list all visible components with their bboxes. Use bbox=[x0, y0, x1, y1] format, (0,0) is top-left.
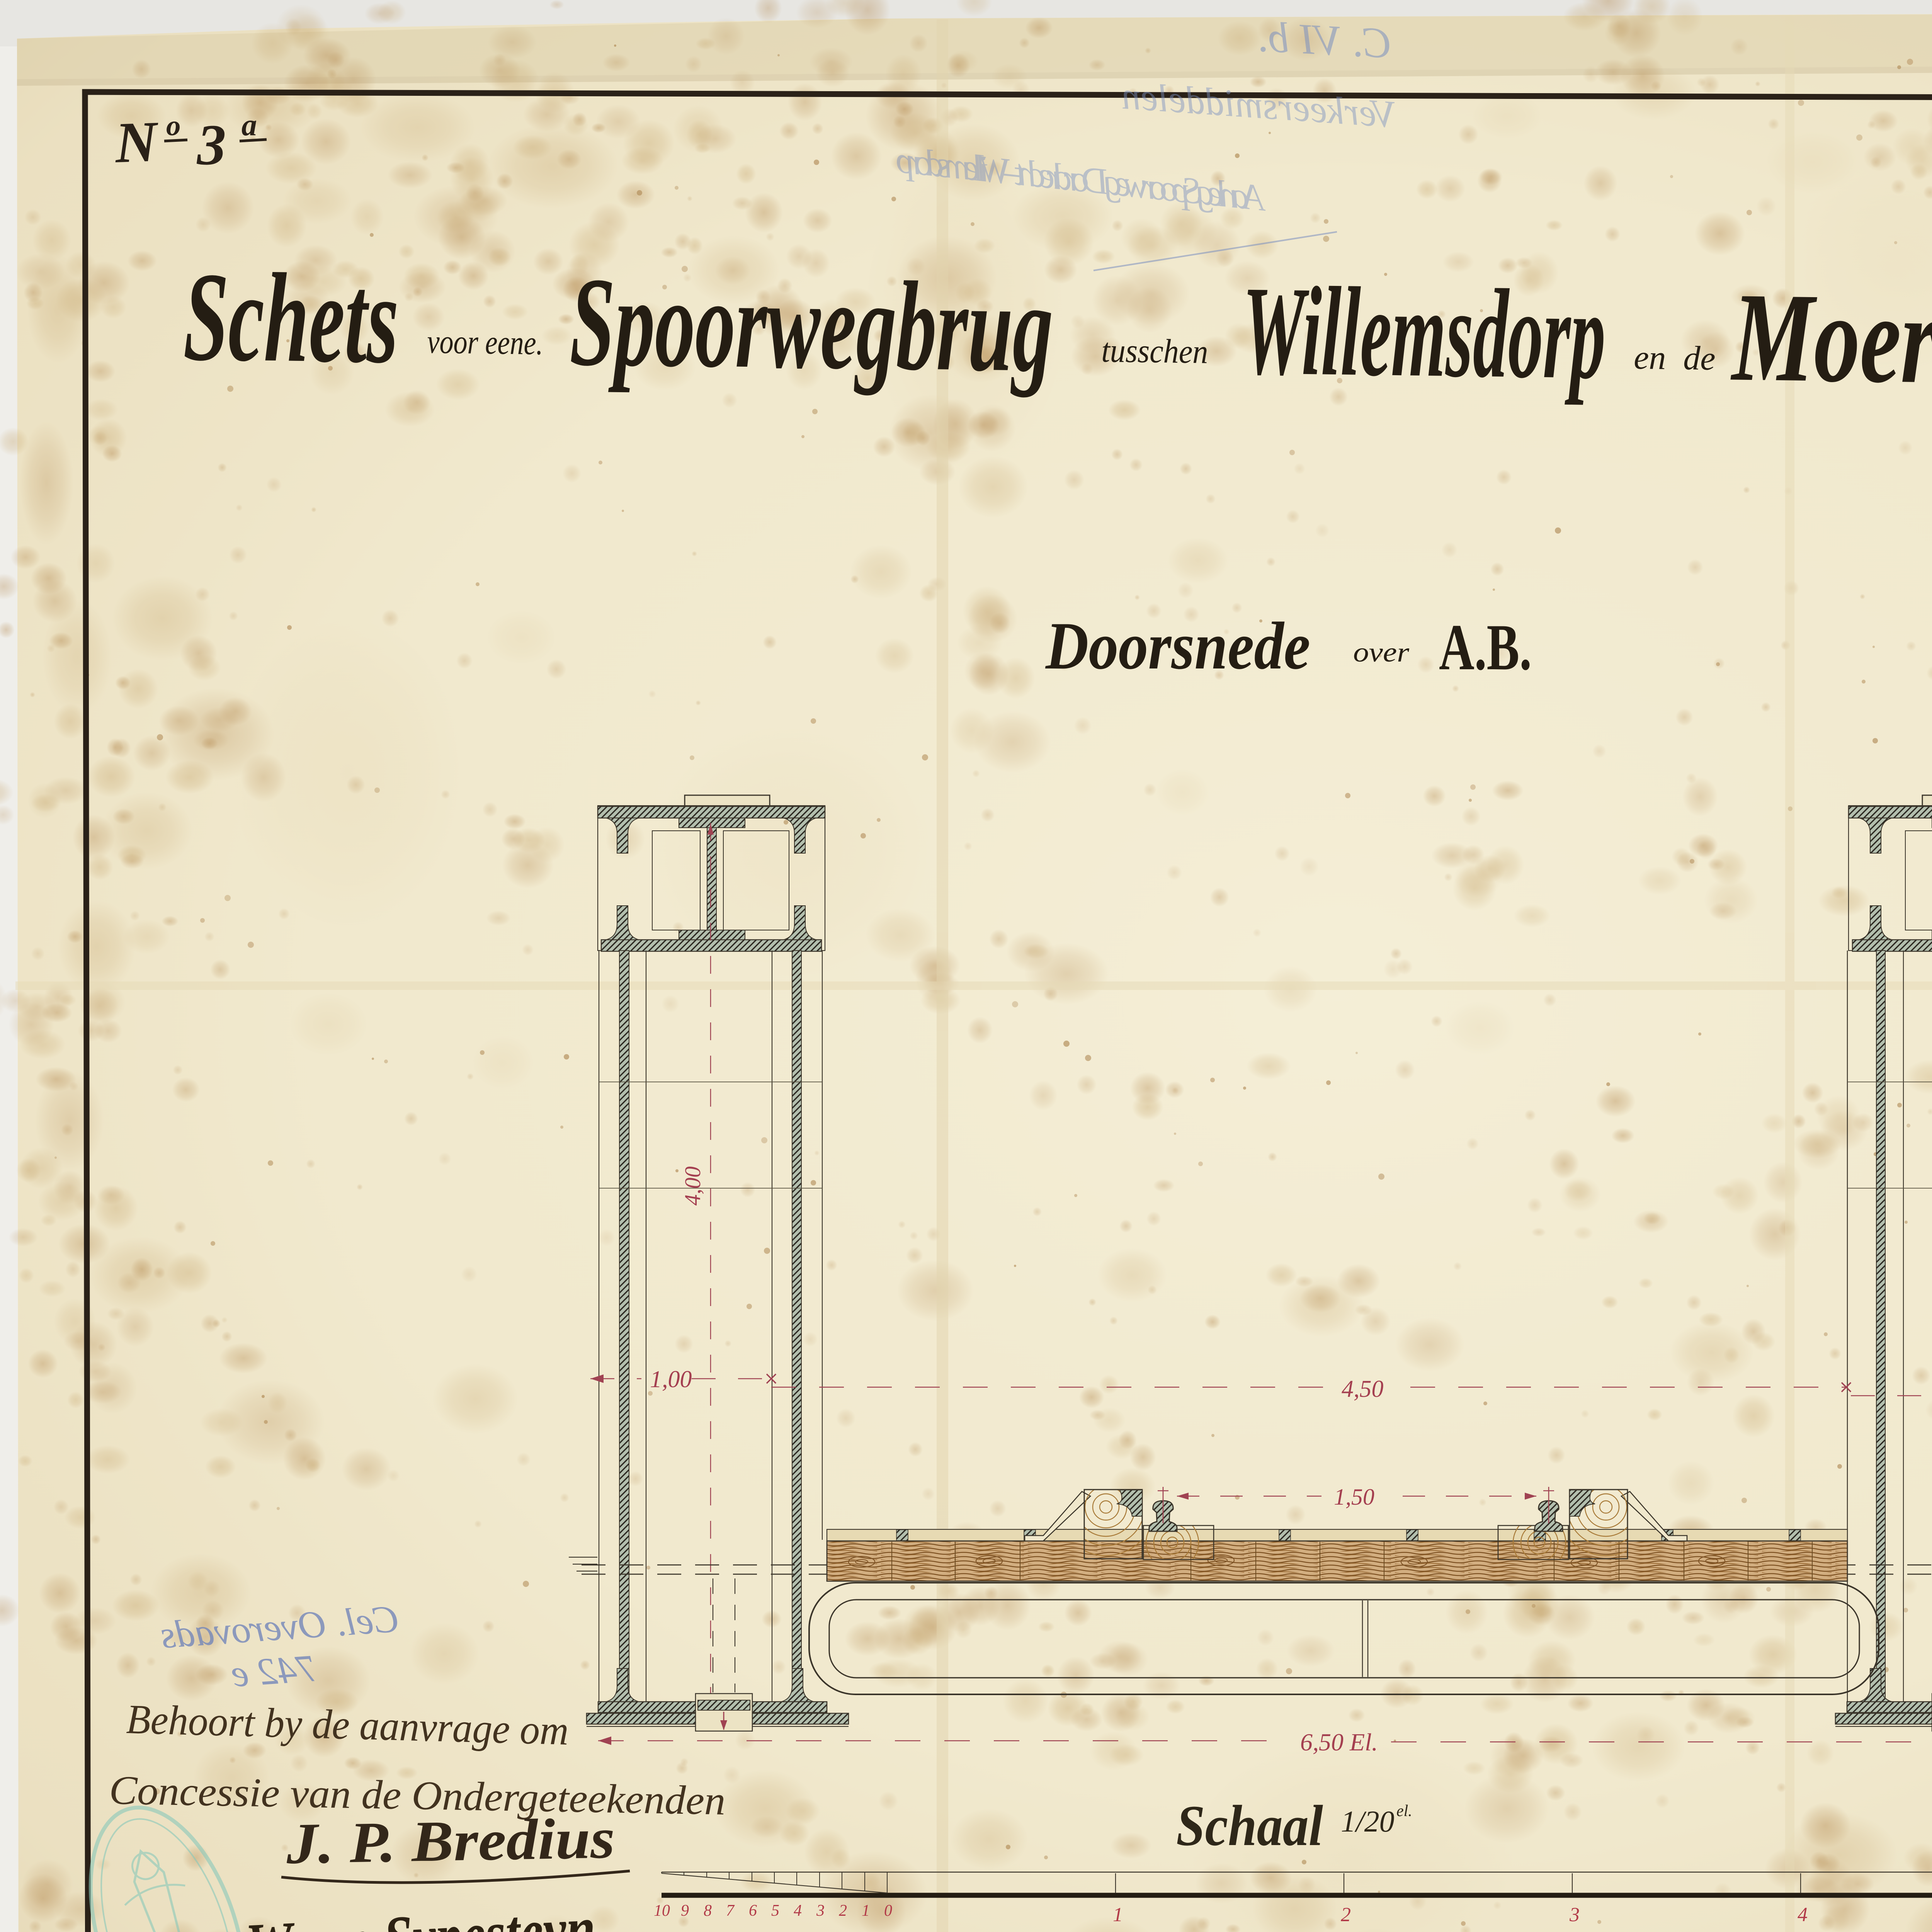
svg-text:C. VI b.: C. VI b. bbox=[1256, 13, 1393, 68]
svg-text:J. P. Bredius: J. P. Bredius bbox=[286, 1806, 616, 1876]
svg-text:1: 1 bbox=[1113, 1904, 1123, 1926]
svg-text:Moerdijk: Moerdijk bbox=[1730, 266, 1932, 412]
svg-text:1,50: 1,50 bbox=[1334, 1484, 1374, 1510]
svg-text:6,50 El.: 6,50 El. bbox=[1300, 1728, 1378, 1756]
svg-text:3: 3 bbox=[1569, 1904, 1580, 1926]
svg-text:4,00: 4,00 bbox=[680, 1167, 705, 1206]
svg-text:0: 0 bbox=[884, 1902, 892, 1920]
svg-text:voor eene.: voor eene. bbox=[427, 323, 543, 362]
svg-text:Spoorwegbrug: Spoorwegbrug bbox=[569, 251, 1054, 399]
svg-text:de: de bbox=[1683, 340, 1716, 378]
svg-text:5: 5 bbox=[771, 1902, 779, 1920]
svg-text:3: 3 bbox=[196, 113, 226, 177]
svg-text:4: 4 bbox=[1798, 1904, 1808, 1926]
svg-text:2: 2 bbox=[1341, 1904, 1351, 1926]
svg-text:1: 1 bbox=[862, 1902, 870, 1920]
svg-text:1,00: 1,00 bbox=[650, 1366, 692, 1393]
svg-text:Schets: Schets bbox=[183, 246, 400, 390]
svg-text:A.B.: A.B. bbox=[1439, 611, 1532, 684]
svg-text:10: 10 bbox=[654, 1902, 670, 1920]
svg-text:o: o bbox=[166, 110, 181, 142]
svg-text:Schaal: Schaal bbox=[1176, 1794, 1323, 1858]
svg-text:1/20: 1/20 bbox=[1341, 1804, 1395, 1838]
svg-text:6: 6 bbox=[749, 1902, 757, 1920]
svg-text:8: 8 bbox=[704, 1902, 712, 1920]
svg-text:9: 9 bbox=[681, 1902, 689, 1920]
svg-text:tusschen: tusschen bbox=[1101, 332, 1208, 371]
svg-text:N: N bbox=[113, 109, 160, 175]
svg-text:4: 4 bbox=[794, 1902, 802, 1920]
svg-text:en: en bbox=[1634, 339, 1666, 377]
svg-text:over: over bbox=[1353, 637, 1410, 668]
svg-text:2: 2 bbox=[839, 1902, 847, 1920]
svg-text:Willemsdorp: Willemsdorp bbox=[1242, 260, 1607, 406]
svg-text:4,50: 4,50 bbox=[1342, 1376, 1384, 1402]
svg-text:742 e: 742 e bbox=[230, 1646, 318, 1695]
svg-text:3: 3 bbox=[816, 1902, 825, 1920]
svg-text:a: a bbox=[241, 108, 257, 142]
svg-text:el.: el. bbox=[1396, 1802, 1412, 1820]
svg-text:7: 7 bbox=[726, 1902, 735, 1920]
svg-text:Doorsnede: Doorsnede bbox=[1045, 608, 1310, 683]
